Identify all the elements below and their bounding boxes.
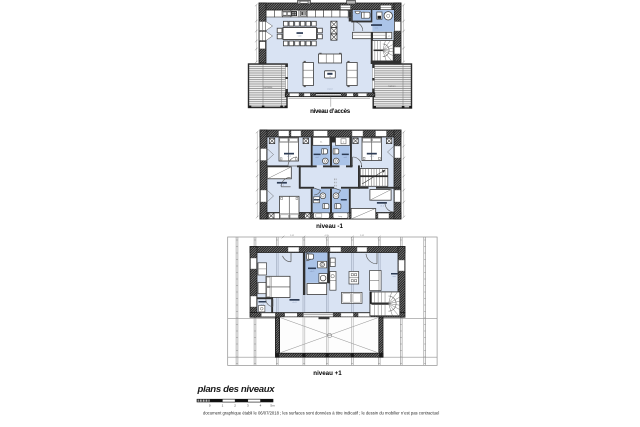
- svg-text:balcon: balcon: [388, 85, 396, 88]
- svg-text:ch. 2: ch. 2: [287, 156, 291, 158]
- svg-text:ch. 4: ch. 4: [380, 205, 384, 207]
- svg-text:plans des niveaux: plans des niveaux: [197, 384, 276, 395]
- svg-text:ch. 5: ch. 5: [370, 156, 374, 158]
- svg-text:lv: lv: [343, 142, 344, 144]
- svg-text:niveau d’accès: niveau d’accès: [310, 108, 351, 115]
- svg-text:sdb2: sdb2: [315, 157, 319, 159]
- svg-text:mez: mez: [393, 276, 396, 278]
- svg-text:document graphique établi le 0: document graphique établi le 06/07/2018 …: [203, 411, 439, 416]
- svg-text:baig.: baig.: [339, 216, 343, 218]
- svg-text:5m: 5m: [270, 403, 275, 407]
- svg-text:niveau +1: niveau +1: [313, 370, 342, 377]
- svg-text:sdb3: sdb3: [343, 157, 347, 159]
- svg-text:t.b: t.b: [329, 75, 331, 78]
- svg-text:terrasse: terrasse: [264, 86, 273, 89]
- svg-text:vest.: vest.: [375, 27, 379, 30]
- svg-text:table: table: [298, 34, 302, 37]
- svg-text:sejour: sejour: [327, 87, 333, 90]
- svg-text:ch. 6: ch. 6: [293, 302, 297, 304]
- svg-text:sdb 5: sdb 5: [310, 271, 314, 273]
- svg-text:niveau -1: niveau -1: [316, 223, 343, 230]
- svg-text:lin.: lin.: [320, 141, 323, 143]
